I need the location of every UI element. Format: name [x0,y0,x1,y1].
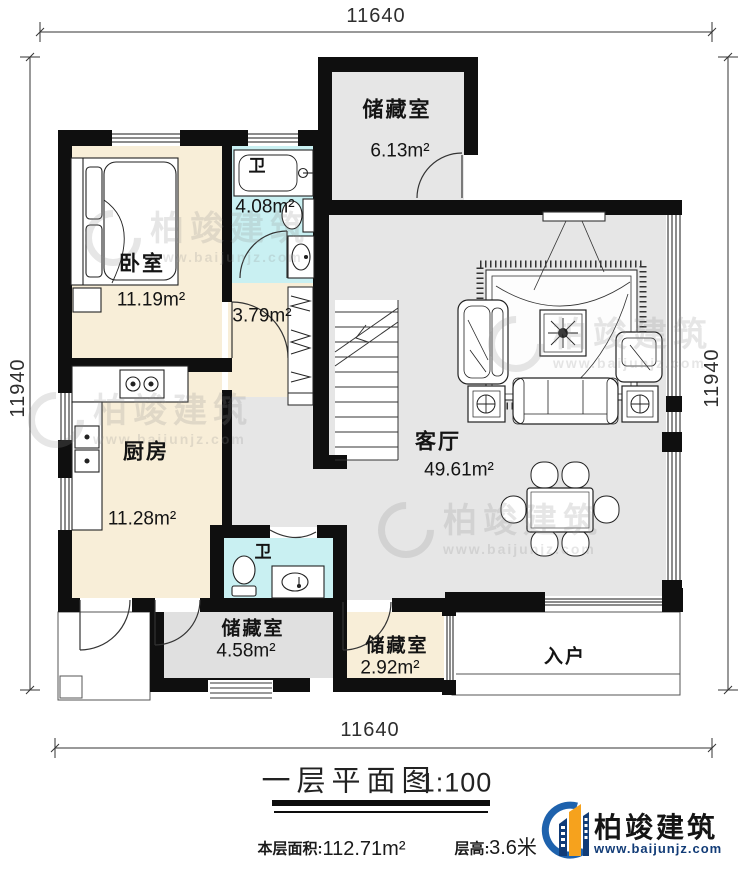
dimension-top: 11640 [346,6,405,26]
room-area-hallway: 3.79m² [232,307,291,326]
bathtub [234,150,313,196]
floor-area-value: 112.71m² [322,839,405,859]
logo-text: 柏竣建筑 [594,806,718,846]
title-underline-thick [272,800,490,806]
floor-height-value: 3.6米 [489,838,537,858]
floor-height-label: 层高: [455,842,490,857]
room-label-storage-top: 储藏室 [363,100,432,121]
page-title: 一层平面图 [261,768,436,797]
floor-plan-canvas [0,0,750,874]
room-area-storage-mid: 4.58m² [216,642,275,661]
toilet-lower [232,556,256,596]
room-label-living: 客厅 [415,432,461,453]
room-area-living: 49.61m² [424,461,494,480]
room-label-kitchen: 厨房 [123,442,169,463]
floor-plan-page: 柏竣建筑 www.baijunjz.com 柏竣建筑 www.baijunjz.… [0,0,750,874]
room-label-bath-bottom: 卫 [255,544,274,561]
room-label-storage-small: 储藏室 [365,637,428,656]
room-area-storage-top: 6.13m² [370,142,429,161]
dimension-left: 11940 [8,358,28,417]
room-label-entry: 入户 [544,648,586,667]
coffee-table-plant [540,310,586,356]
room-label-bedroom: 卧室 [119,254,165,275]
logo-mark [545,804,589,856]
logo-url: www.baijunjz.com [594,841,722,856]
dimension-bottom: 11640 [340,720,399,740]
room-area-bath-top: 4.08m² [235,198,294,217]
title-underline-thin [274,811,488,813]
room-area-kitchen: 11.28m² [108,510,176,529]
dimension-right: 11940 [702,348,722,407]
washbasin-lower [272,566,324,598]
entry-steps [208,680,273,702]
room-area-storage-small: 2.92m² [360,659,419,678]
room-label-storage-mid: 储藏室 [221,620,284,639]
scale-label: 1:100 [420,770,493,797]
floor-area-label: 本层面积: [258,842,323,857]
washbasin-upper [288,236,314,278]
closet [288,287,313,405]
room-area-bedroom: 11.19m² [117,291,185,310]
room-label-bath-top: 卫 [249,158,268,175]
